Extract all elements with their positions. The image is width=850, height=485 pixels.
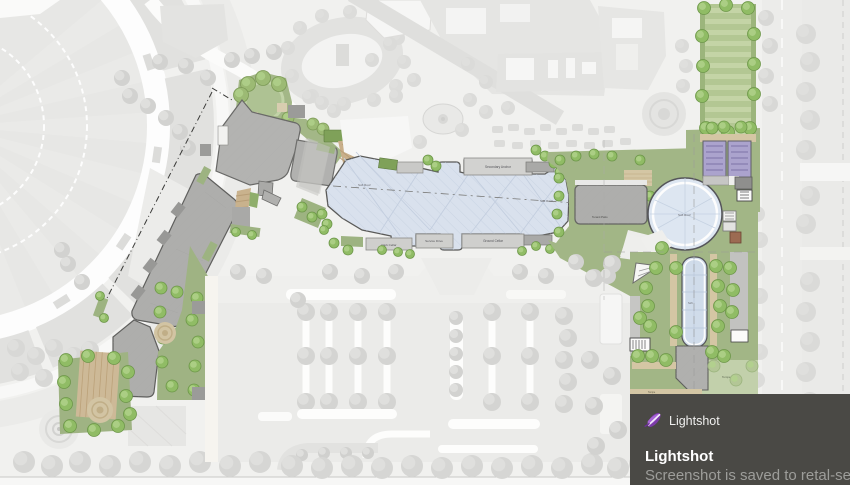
svg-text:Secondary Anchor: Secondary Anchor (485, 165, 512, 169)
svg-text:Tempe: Tempe (648, 391, 656, 394)
svg-text:Soft Roof: Soft Roof (540, 199, 553, 203)
svg-text:Tenant Patio: Tenant Patio (592, 215, 608, 219)
svg-text:Screenshot is saved to retal-s: Screenshot is saved to retal-sec (645, 467, 850, 484)
svg-text:Ground Cellar: Ground Cellar (483, 239, 504, 243)
svg-text:Service Drive: Service Drive (425, 239, 443, 243)
svg-text:Soft Roof: Soft Roof (678, 213, 691, 217)
svg-text:Lightshot: Lightshot (645, 448, 713, 465)
svg-text:Soft Roof: Soft Roof (358, 183, 371, 187)
svg-text:Lightshot: Lightshot (669, 414, 720, 428)
svg-text:Tempe: Tempe (722, 375, 731, 379)
svg-text:Soft: Soft (688, 301, 693, 305)
